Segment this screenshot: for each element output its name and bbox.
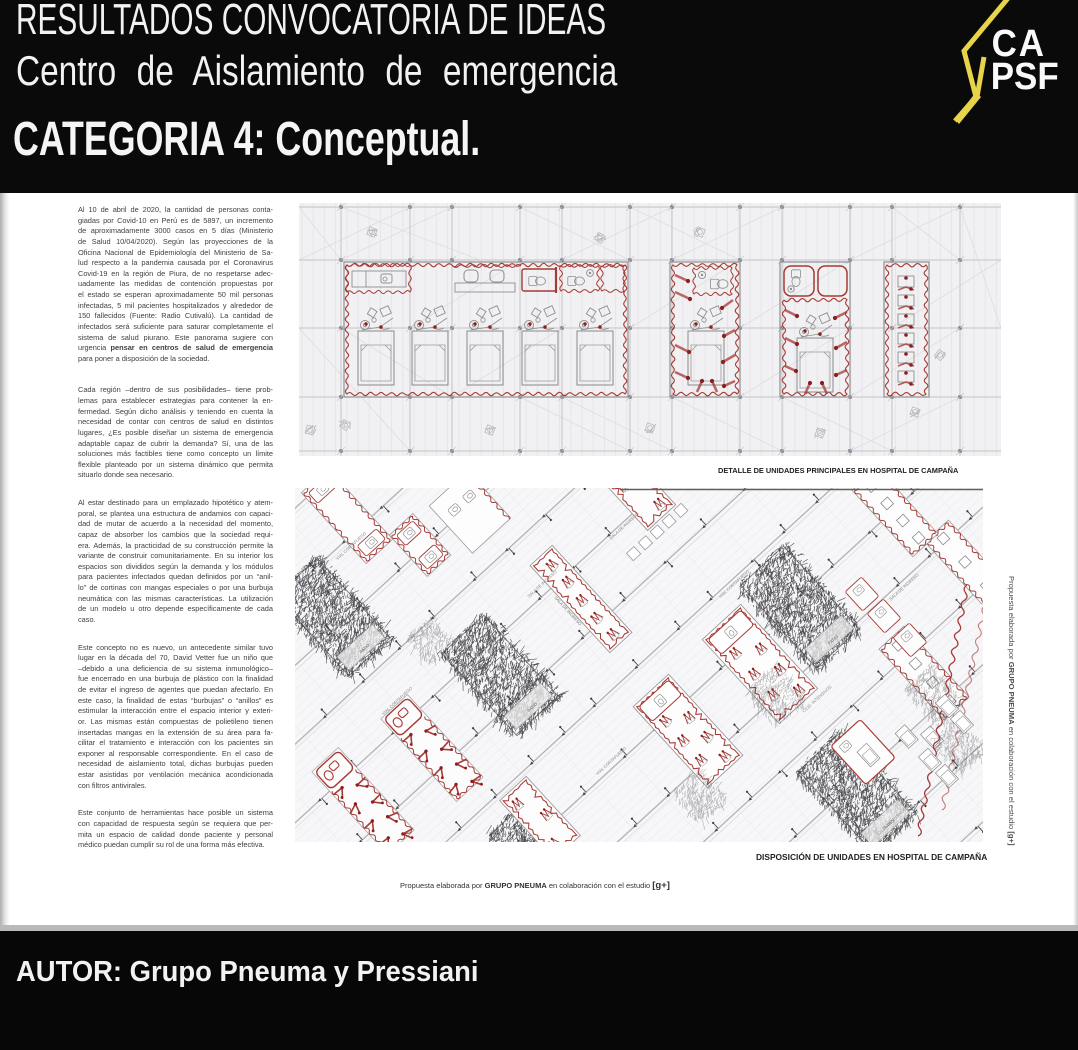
- svg-text:PSF: PSF: [991, 55, 1059, 98]
